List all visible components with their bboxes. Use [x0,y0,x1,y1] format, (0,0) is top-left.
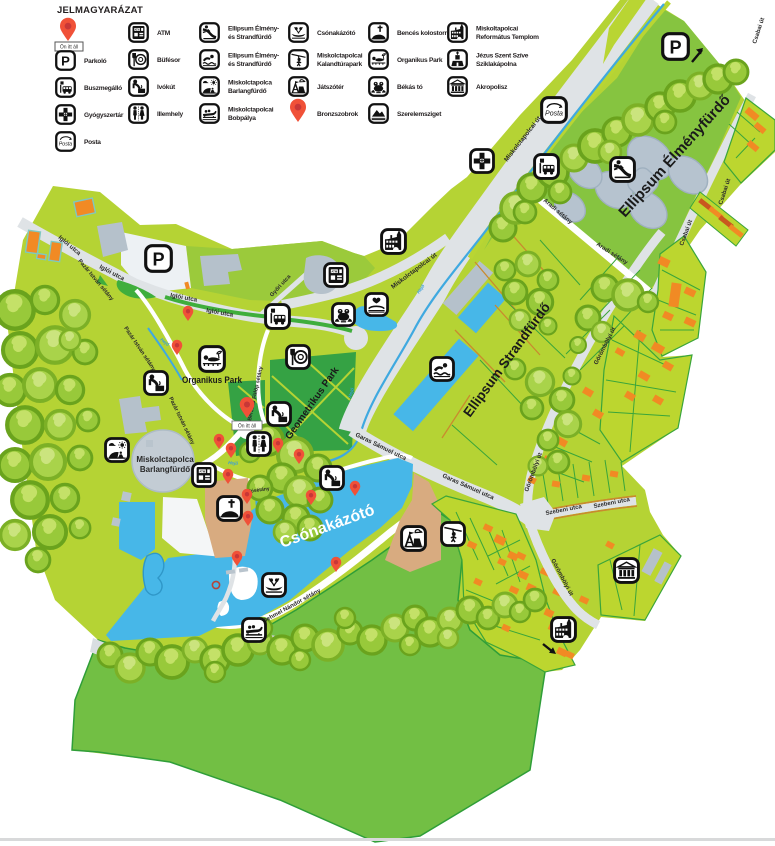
svg-text:Ön itt áll: Ön itt áll [238,423,256,430]
svg-text:és Strandfürdő: és Strandfürdő [228,61,272,68]
svg-text:Hejő: Hejő [228,460,239,466]
svg-text:Barlangfürdő: Barlangfürdő [140,465,190,474]
svg-text:és Strandfürdő: és Strandfürdő [228,34,272,41]
svg-text:Parkoló: Parkoló [84,58,107,65]
svg-text:Posta: Posta [84,139,101,146]
svg-text:Barlangfürdő: Barlangfürdő [228,88,267,95]
svg-text:Csónakázótó: Csónakázótó [317,30,356,37]
svg-text:Miskolctapolca: Miskolctapolca [228,80,272,87]
svg-text:Kalandtúrapark: Kalandtúrapark [317,61,362,68]
svg-text:Organikus Park: Organikus Park [397,57,443,64]
svg-text:Miskoltapolcai: Miskoltapolcai [476,26,518,33]
svg-text:ATM: ATM [157,30,171,37]
svg-text:Akropolisz: Akropolisz [476,84,508,91]
svg-text:Ön itt áll: Ön itt áll [60,44,78,51]
svg-text:Ivókút: Ivókút [157,84,176,91]
svg-text:Organikus Park: Organikus Park [182,375,243,386]
svg-text:Ellipsum Élmény-: Ellipsum Élmény- [228,24,279,33]
svg-text:Szerelemsziget: Szerelemsziget [397,111,442,118]
svg-text:Büfésor: Büfésor [157,57,181,64]
svg-text:Játszótér: Játszótér [317,84,344,91]
svg-text:Miskolctapolcai: Miskolctapolcai [317,53,363,60]
svg-text:Buszmegálló: Buszmegálló [84,85,122,92]
svg-text:Református Templom: Református Templom [476,34,539,41]
svg-text:Bronzszobrok: Bronzszobrok [317,111,359,118]
svg-text:JELMAGYARÁZAT: JELMAGYARÁZAT [57,5,143,16]
svg-text:Illemhely: Illemhely [157,111,184,118]
svg-text:Sziklakápolna: Sziklakápolna [476,61,517,68]
svg-text:Békás tó: Békás tó [397,84,423,91]
svg-text:Gyógyszertár: Gyógyszertár [84,112,124,119]
svg-text:Jézus Szent Szíve: Jézus Szent Szíve [476,53,529,60]
svg-text:Miskolctapolca: Miskolctapolca [136,455,194,464]
svg-text:Ellipsum Élmény-: Ellipsum Élmény- [228,51,279,60]
svg-text:Bobpálya: Bobpálya [228,115,256,122]
svg-text:Miskolctapolcai: Miskolctapolcai [228,107,274,114]
